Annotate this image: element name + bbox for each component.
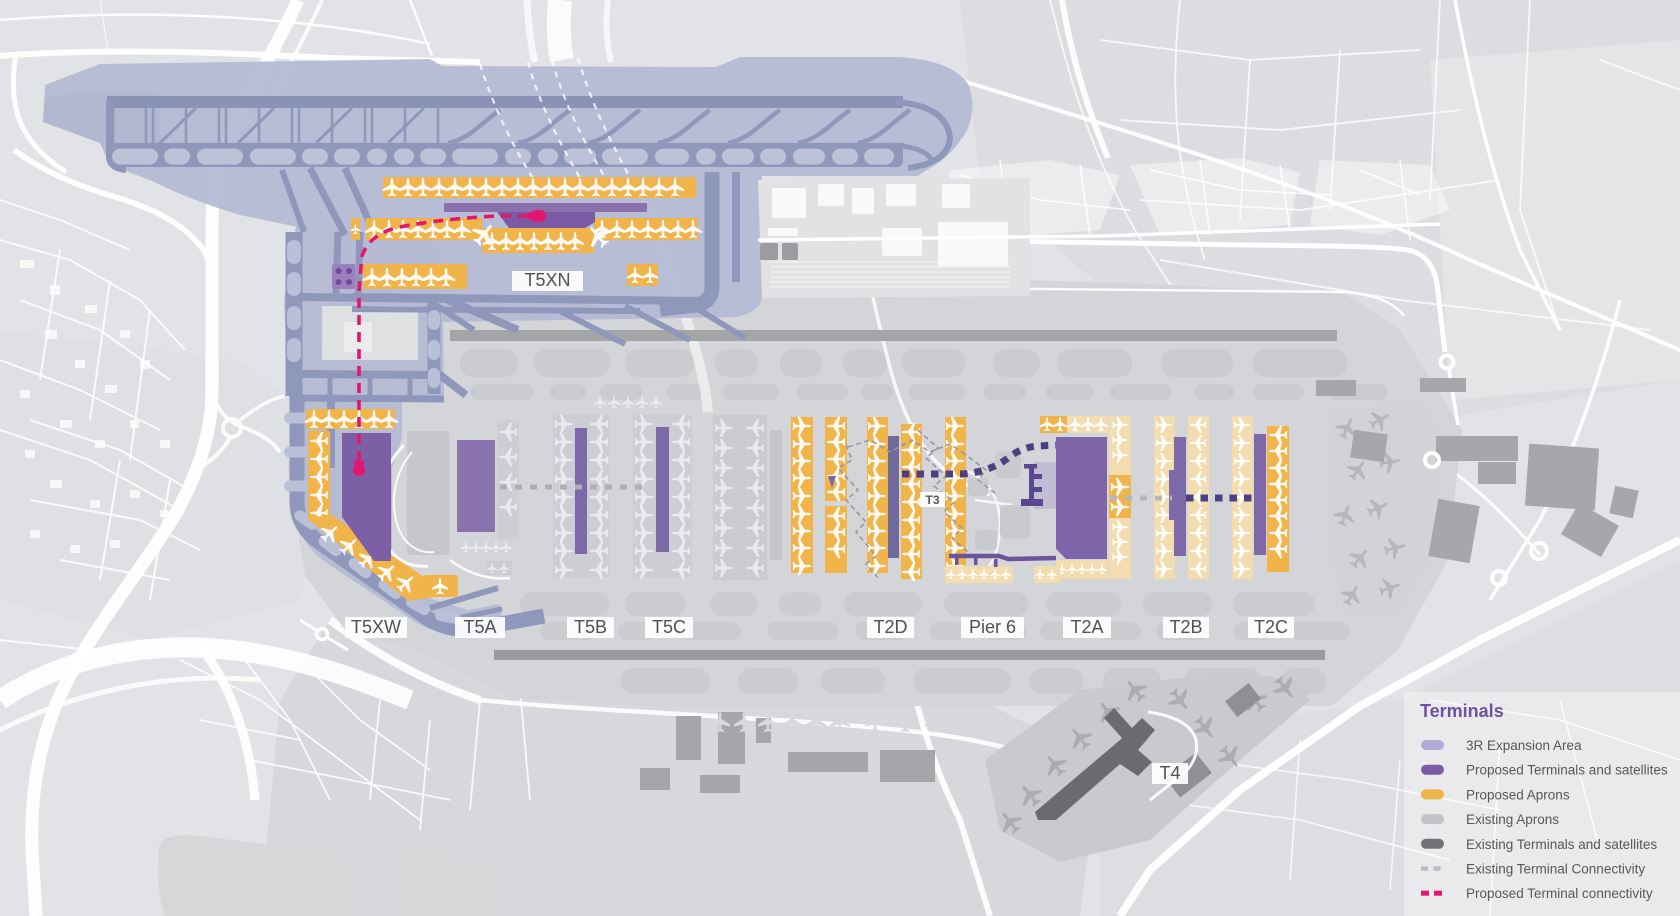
svg-text:Proposed Terminals and satelli: Proposed Terminals and satellites [1466, 763, 1668, 778]
svg-text:T5B: T5B [574, 617, 607, 637]
svg-text:Proposed Aprons: Proposed Aprons [1466, 787, 1570, 802]
svg-text:Existing Terminal Connectivity: Existing Terminal Connectivity [1466, 862, 1645, 877]
svg-text:3R Expansion Area: 3R Expansion Area [1466, 738, 1582, 753]
svg-text:T5XN: T5XN [524, 270, 570, 290]
svg-text:T5C: T5C [652, 617, 686, 637]
svg-text:T2D: T2D [873, 617, 907, 637]
svg-text:T4: T4 [1159, 763, 1180, 783]
svg-text:T5XW: T5XW [351, 617, 401, 637]
svg-text:Existing Aprons: Existing Aprons [1466, 812, 1559, 827]
svg-text:Pier 6: Pier 6 [969, 617, 1016, 637]
svg-text:T3: T3 [925, 493, 939, 507]
svg-text:Terminals: Terminals [1420, 701, 1504, 721]
svg-text:T5A: T5A [463, 617, 496, 637]
svg-text:T2B: T2B [1169, 617, 1202, 637]
svg-text:T2C: T2C [1254, 617, 1288, 637]
svg-text:Proposed Terminal connectivity: Proposed Terminal connectivity [1466, 886, 1653, 901]
svg-text:T2A: T2A [1070, 617, 1103, 637]
svg-text:Existing Terminals and satelli: Existing Terminals and satellites [1466, 837, 1657, 852]
